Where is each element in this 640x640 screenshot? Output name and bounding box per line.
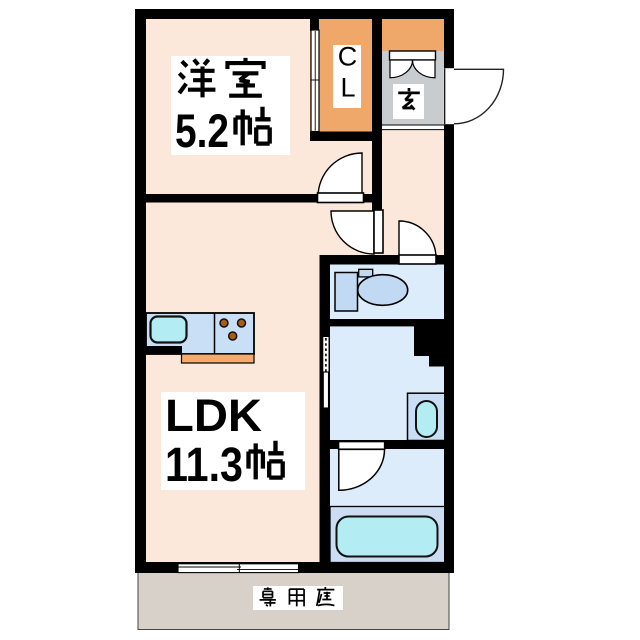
svg-text:C: C bbox=[338, 41, 358, 71]
svg-text:5.2: 5.2 bbox=[175, 104, 229, 157]
svg-text:L: L bbox=[340, 73, 355, 103]
svg-text:LDK: LDK bbox=[165, 390, 263, 441]
svg-text:11.3: 11.3 bbox=[165, 439, 243, 492]
